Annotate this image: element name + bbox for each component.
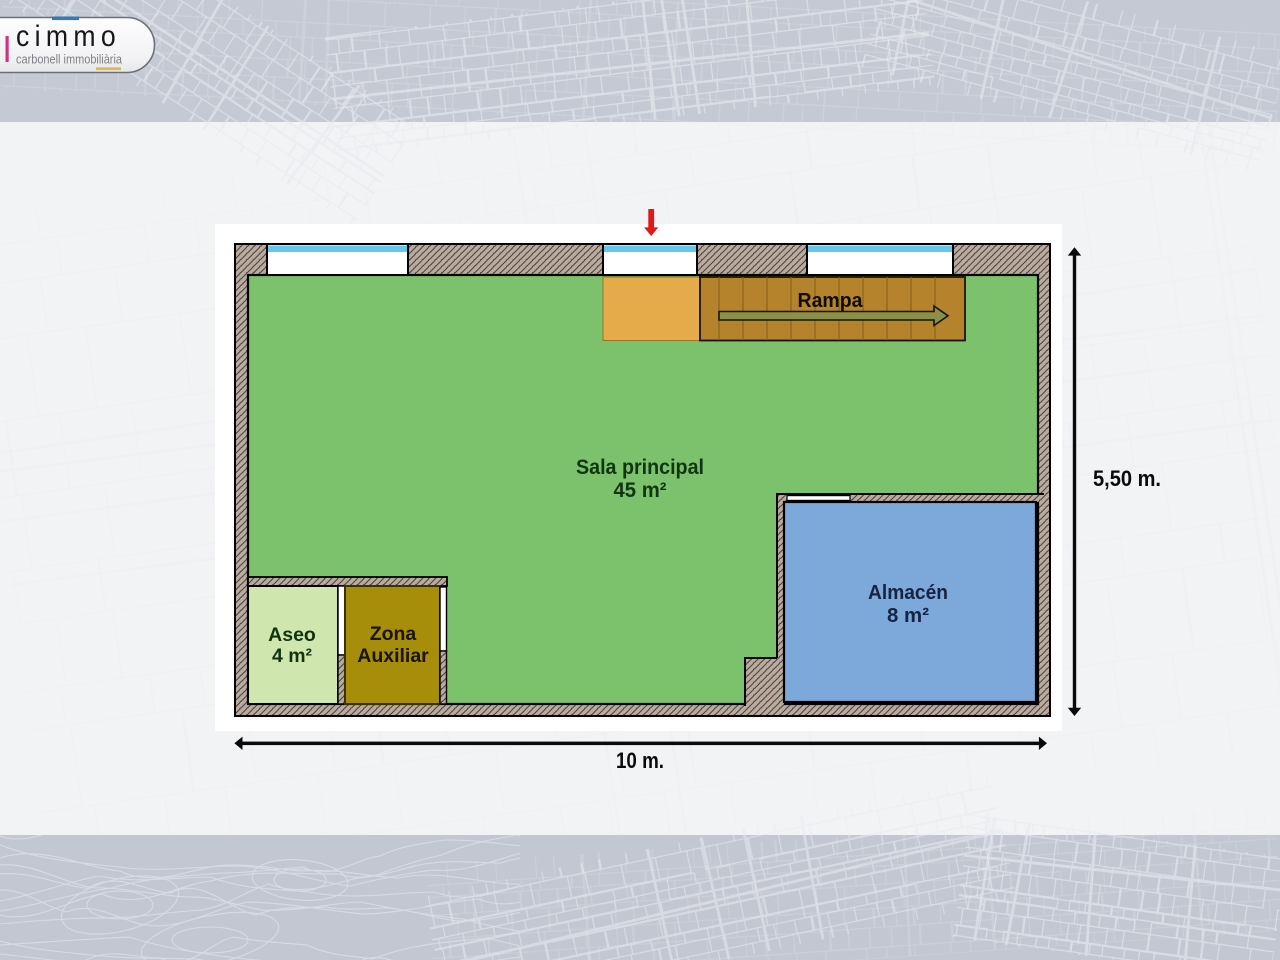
svg-text:Auxiliar: Auxiliar [357,645,429,667]
svg-text:Almacén: Almacén [868,582,948,604]
svg-text:45 m²: 45 m² [614,479,667,502]
svg-text:Rampa: Rampa [798,290,864,312]
svg-text:4 m²: 4 m² [272,645,313,667]
svg-text:carbonell immobiliària: carbonell immobiliària [16,53,122,67]
svg-text:Sala principal: Sala principal [576,456,704,479]
svg-text:5,50 m.: 5,50 m. [1093,466,1161,491]
svg-text:10 m.: 10 m. [616,748,664,773]
svg-text:Aseo: Aseo [268,624,316,646]
svg-text:cimmo: cimmo [16,20,121,53]
svg-text:Zona: Zona [370,623,417,645]
svg-text:8 m²: 8 m² [887,605,929,627]
